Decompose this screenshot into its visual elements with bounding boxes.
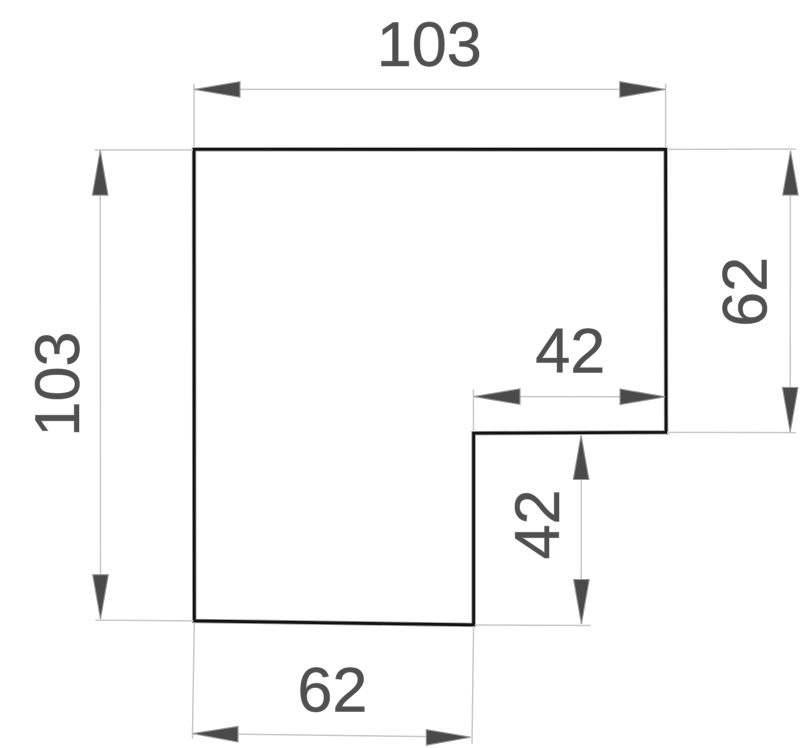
svg-text:42: 42 [503,489,573,559]
svg-text:42: 42 [535,316,605,386]
svg-text:62: 62 [711,257,781,327]
svg-text:62: 62 [297,655,367,725]
svg-text:103: 103 [377,10,482,80]
svg-text:103: 103 [23,331,93,436]
